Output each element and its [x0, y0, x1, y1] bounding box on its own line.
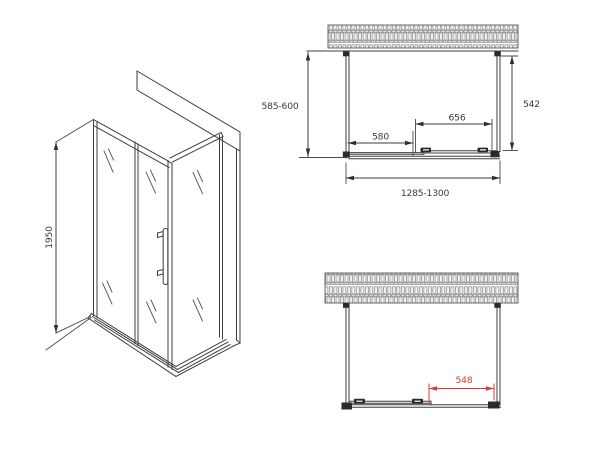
- wall-hatch-top: [328, 25, 518, 48]
- bottom-rail: [46, 314, 240, 377]
- right-wall-profile-open: [494, 303, 501, 404]
- dim-label-overall-width: 1285-1300: [401, 188, 450, 199]
- dim-label-depth-left: 585-600: [262, 101, 299, 112]
- left-wall-profile-open: [343, 303, 350, 409]
- plan-view-bottom: 548: [325, 273, 518, 410]
- dim-label-fixed-glass: 580: [372, 132, 389, 143]
- left-wall-profile: [343, 51, 350, 158]
- dim-label-opening: 548: [456, 375, 473, 386]
- isometric-view: 1950: [44, 71, 240, 377]
- dim-label-depth-right: 542: [523, 99, 540, 110]
- door-track-closed: [349, 148, 500, 159]
- dimension-opening: 548: [429, 375, 494, 403]
- door-track-open: [342, 399, 501, 410]
- dim-label-door-glass: 656: [449, 113, 466, 124]
- glass-shine-marks: [103, 149, 203, 323]
- front-frame: [94, 120, 173, 370]
- dimension-door-glass: 656: [416, 113, 493, 153]
- door-handle: [158, 229, 168, 285]
- dimension-depth-right: 542: [502, 56, 540, 151]
- technical-drawing-canvas: 1950: [0, 0, 600, 452]
- wall-hatch-bottom: [325, 273, 518, 303]
- dimension-overall-width: 1285-1300: [346, 161, 500, 199]
- drawing-page: 1950: [0, 0, 600, 452]
- height-dimension: 1950: [44, 120, 93, 333]
- dim-label-height: 1950: [44, 226, 55, 249]
- plan-view-top: 585-600 542 656 580: [262, 25, 540, 199]
- right-wall-profile: [494, 51, 501, 152]
- dimension-depth-left: 585-600: [262, 53, 348, 158]
